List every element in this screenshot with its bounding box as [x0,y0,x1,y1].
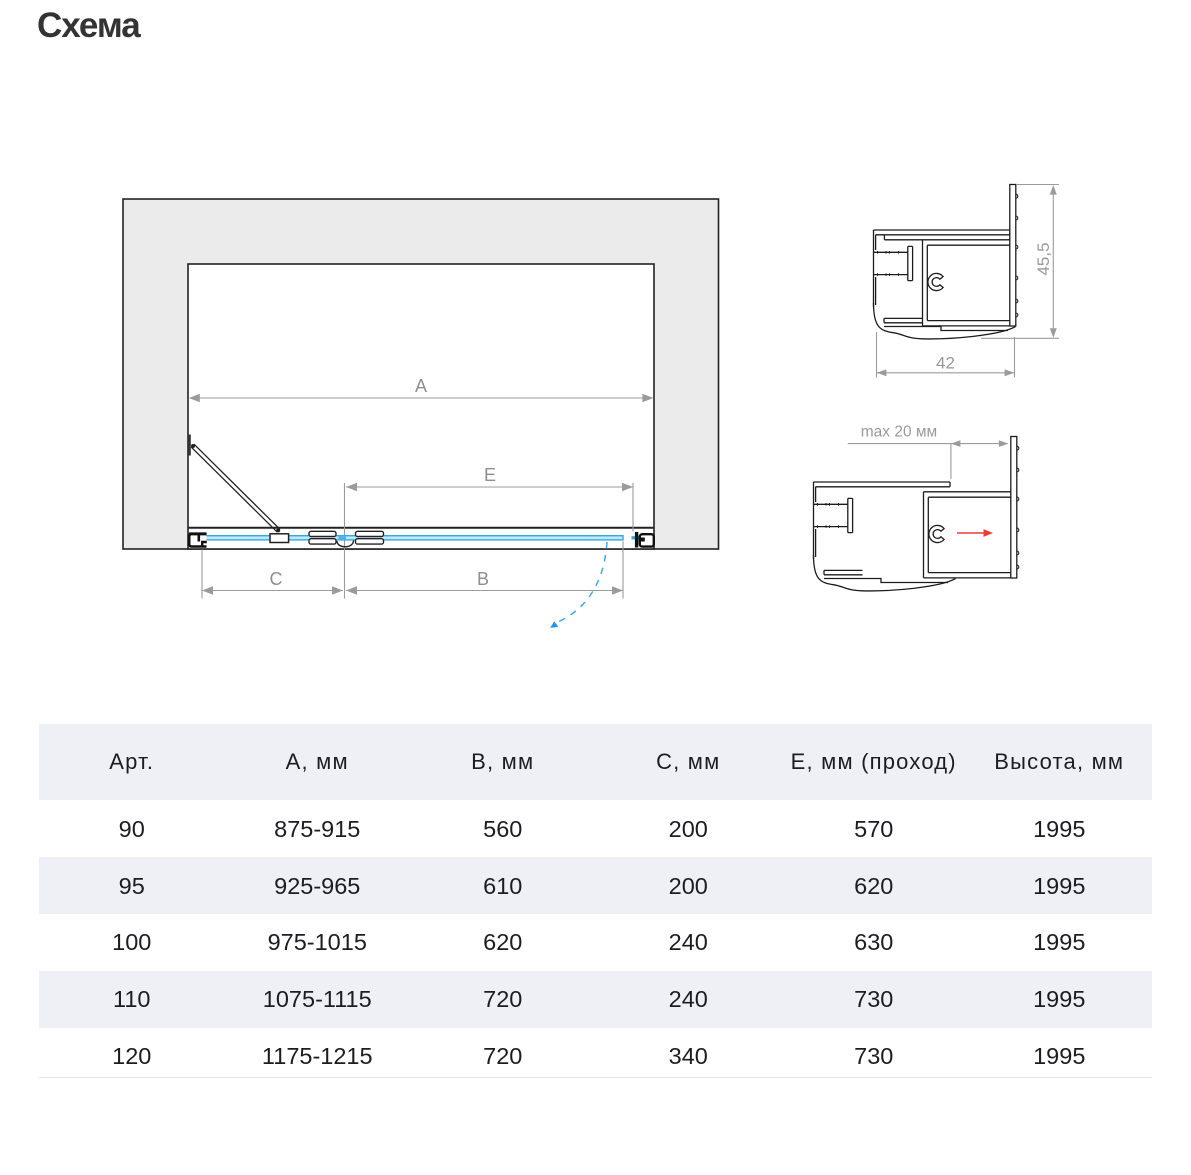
svg-text:max 20 мм: max 20 мм [861,424,937,441]
svg-text:42: 42 [936,354,955,373]
svg-text:A: A [415,376,427,396]
svg-text:E: E [484,465,496,485]
svg-text:45,5: 45,5 [1034,242,1053,275]
svg-text:B: B [477,569,489,589]
svg-text:C: C [270,569,283,589]
